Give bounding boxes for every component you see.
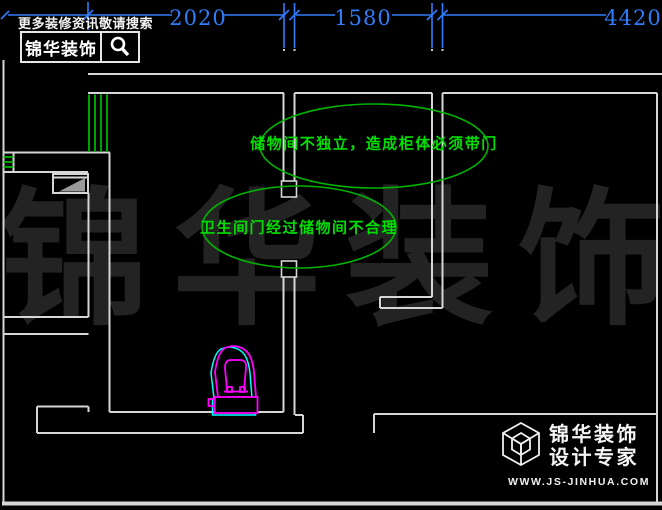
dimension-label: 1580 [334,6,391,30]
brand-footer-tagline: 设计专家 [549,446,639,469]
brand-footer-names: 锦华装饰 设计专家 [549,423,639,469]
toilet-fixture [209,346,258,415]
annotation-ellipses [202,104,488,268]
cube-logo-icon [500,420,542,472]
annotation-bathroom: 卫生间门经过储物间不合理 [200,217,398,238]
brand-search-badge[interactable]: 锦华装饰 [20,31,140,63]
brand-footer-name: 锦华装饰 [549,423,639,446]
brand-footer-row: 锦华装饰 设计专家 [500,420,658,472]
brand-name: 锦华装饰 [22,33,100,61]
ad-slogan: 更多装修资讯敬请搜索 [18,13,153,32]
search-icon[interactable] [100,33,138,61]
window-lines [4,95,108,168]
search-icon-glyph [109,36,131,58]
brand-footer-url: WWW.JS-JINHUA.COM [500,476,658,488]
annotation-storage: 储物间不独立，造成柜体必须带门 [250,133,498,154]
dimension-label: 4420 [604,6,661,30]
brand-footer: 锦华装饰 设计专家 WWW.JS-JINHUA.COM [500,420,658,488]
cad-floorplan-screenshot: 锦 华 装 饰 [0,0,662,510]
dimension-label: 2020 [169,6,226,30]
